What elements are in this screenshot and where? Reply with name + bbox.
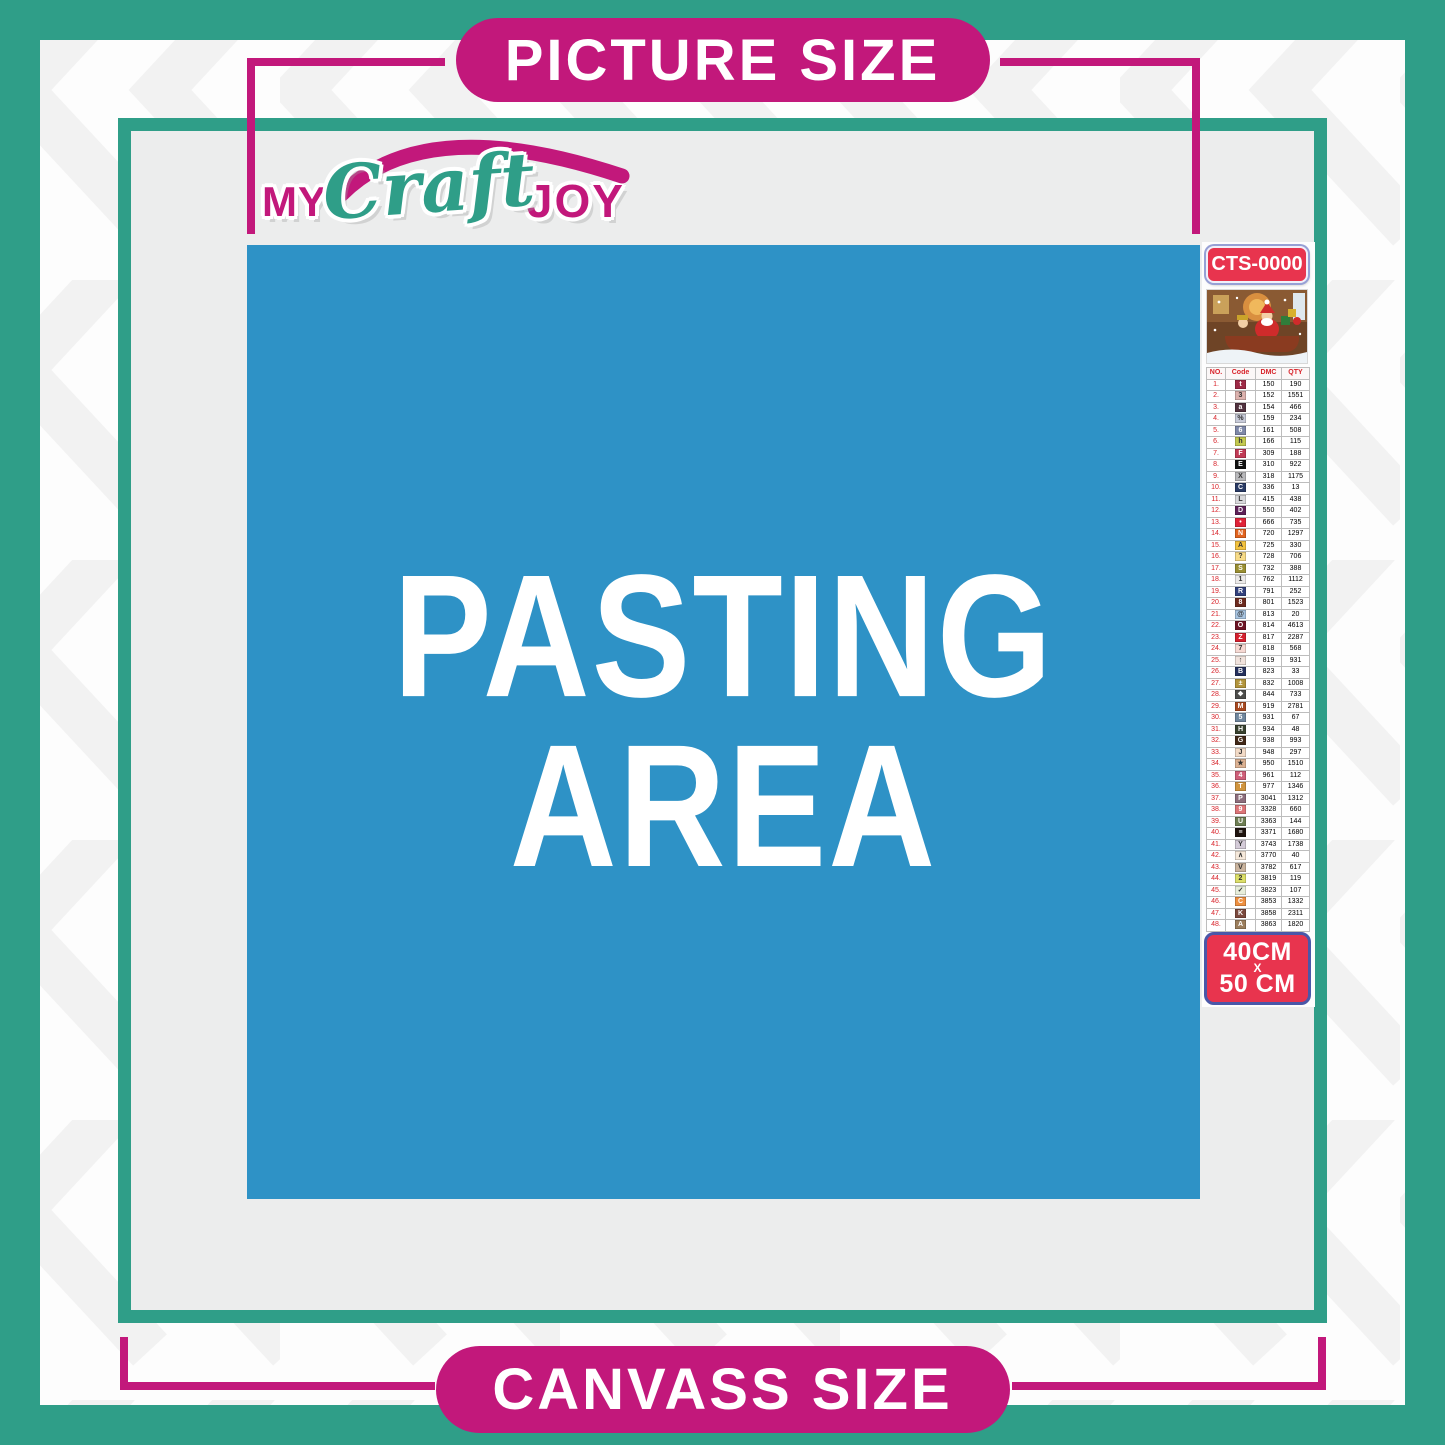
color-chip: 5: [1235, 713, 1246, 722]
color-chip: C: [1235, 897, 1246, 906]
color-legend-table: NO. Code DMC QTY 1.t1501902.315215513.a1…: [1206, 367, 1310, 932]
legend-row-code: Z: [1226, 632, 1256, 644]
legend-row-dmc: 961: [1256, 770, 1282, 782]
legend-row-number: 42.: [1207, 851, 1226, 863]
size-height-text: 50 CM: [1219, 974, 1295, 995]
legend-row: 24.7818568: [1207, 644, 1310, 656]
legend-row: 36.T9771346: [1207, 782, 1310, 794]
legend-row: 41.Y37431738: [1207, 839, 1310, 851]
legend-row-dmc: 3328: [1256, 805, 1282, 817]
legend-row: 21.@81320: [1207, 609, 1310, 621]
legend-row-number: 32.: [1207, 736, 1226, 748]
mycraftjoy-logo: MY Craft JOY: [262, 140, 625, 232]
size-width-text: 40CM: [1223, 942, 1292, 963]
legend-row-code: @: [1226, 609, 1256, 621]
legend-row-qty: 1820: [1282, 920, 1310, 932]
legend-row-number: 20.: [1207, 598, 1226, 610]
legend-row-code: H: [1226, 724, 1256, 736]
legend-row-qty: 40: [1282, 851, 1310, 863]
legend-row-number: 24.: [1207, 644, 1226, 656]
color-chip: P: [1235, 794, 1246, 803]
legend-row-qty: 1510: [1282, 759, 1310, 771]
legend-row-dmc: 336: [1256, 483, 1282, 495]
color-chip: V: [1235, 863, 1246, 872]
legend-row-dmc: 3770: [1256, 851, 1282, 863]
color-chip: 8: [1235, 598, 1246, 607]
legend-row-qty: 931: [1282, 655, 1310, 667]
legend-row-qty: 2287: [1282, 632, 1310, 644]
legend-row-dmc: 310: [1256, 460, 1282, 472]
legend-header-code: Code: [1226, 368, 1256, 380]
legend-row: 38.93328660: [1207, 805, 1310, 817]
legend-row: 30.593167: [1207, 713, 1310, 725]
color-chip: h: [1235, 437, 1246, 446]
legend-row-code: 9: [1226, 805, 1256, 817]
legend-row-code: %: [1226, 414, 1256, 426]
legend-row-code: ∧: [1226, 851, 1256, 863]
legend-row-code: O: [1226, 621, 1256, 633]
color-chip: 2: [1235, 874, 1246, 883]
legend-row-dmc: 919: [1256, 701, 1282, 713]
legend-row-dmc: 977: [1256, 782, 1282, 794]
legend-row-code: M: [1226, 701, 1256, 713]
legend-row: 37.P30411312: [1207, 793, 1310, 805]
legend-row-number: 6.: [1207, 437, 1226, 449]
legend-row-code: C: [1226, 897, 1256, 909]
legend-row: 27.±8321008: [1207, 678, 1310, 690]
legend-row-code: ★: [1226, 759, 1256, 771]
legend-row-code: 1: [1226, 575, 1256, 587]
legend-row: 35.4961112: [1207, 770, 1310, 782]
color-chip: %: [1235, 414, 1246, 423]
legend-row-dmc: 166: [1256, 437, 1282, 449]
legend-row-qty: 13: [1282, 483, 1310, 495]
color-chip: K: [1235, 909, 1246, 918]
picture-bracket-left-stub: [247, 58, 255, 234]
legend-row-dmc: 3819: [1256, 874, 1282, 886]
legend-row-number: 31.: [1207, 724, 1226, 736]
legend-row-dmc: 931: [1256, 713, 1282, 725]
legend-row-dmc: 938: [1256, 736, 1282, 748]
legend-row: 32.G938993: [1207, 736, 1310, 748]
legend-row-number: 23.: [1207, 632, 1226, 644]
legend-row: 22.O8144613: [1207, 621, 1310, 633]
legend-row-number: 28.: [1207, 690, 1226, 702]
legend-row: 1.t150190: [1207, 379, 1310, 391]
canvass-bracket-left-stub: [120, 1337, 128, 1390]
legend-row-dmc: 154: [1256, 402, 1282, 414]
legend-row-qty: 1175: [1282, 471, 1310, 483]
product-code-badge: CTS-0000: [1206, 246, 1308, 283]
color-chip: D: [1235, 506, 1246, 515]
product-code-text: CTS-0000: [1211, 253, 1302, 276]
legend-row-code: E: [1226, 460, 1256, 472]
color-chip: J: [1235, 748, 1246, 757]
legend-row: 10.C33613: [1207, 483, 1310, 495]
legend-row-qty: 1738: [1282, 839, 1310, 851]
legend-row-number: 16.: [1207, 552, 1226, 564]
legend-row-code: K: [1226, 908, 1256, 920]
legend-row-number: 21.: [1207, 609, 1226, 621]
artwork-thumbnail: [1207, 290, 1307, 363]
legend-row-dmc: 415: [1256, 494, 1282, 506]
legend-row-code: •: [1226, 517, 1256, 529]
legend-row: 5.6161508: [1207, 425, 1310, 437]
legend-row-code: 5: [1226, 713, 1256, 725]
legend-row-code: T: [1226, 782, 1256, 794]
color-chip: t: [1235, 380, 1246, 389]
legend-row: 47.K38582311: [1207, 908, 1310, 920]
pasting-area-title: PASTING AREA: [393, 553, 1054, 892]
legend-row-number: 46.: [1207, 897, 1226, 909]
legend-row-dmc: 948: [1256, 747, 1282, 759]
legend-row: 15.A725330: [1207, 540, 1310, 552]
legend-row-dmc: 950: [1256, 759, 1282, 771]
legend-row-number: 40.: [1207, 828, 1226, 840]
legend-row-dmc: 819: [1256, 655, 1282, 667]
legend-header-dmc: DMC: [1256, 368, 1282, 380]
color-chip: ❖: [1235, 690, 1246, 699]
pasting-line-2: AREA: [393, 722, 1054, 891]
legend-row-number: 1.: [1207, 379, 1226, 391]
legend-row-qty: 1680: [1282, 828, 1310, 840]
color-chip: ±: [1235, 679, 1246, 688]
color-chip: O: [1235, 621, 1246, 630]
legend-row-dmc: 159: [1256, 414, 1282, 426]
color-chip: ≡: [1235, 828, 1246, 837]
legend-row-code: G: [1226, 736, 1256, 748]
legend-row-qty: 67: [1282, 713, 1310, 725]
legend-row-code: R: [1226, 586, 1256, 598]
legend-row-qty: 1312: [1282, 793, 1310, 805]
legend-row: 7.F309188: [1207, 448, 1310, 460]
legend-row-code: 6: [1226, 425, 1256, 437]
color-chip: 9: [1235, 805, 1246, 814]
legend-row-number: 10.: [1207, 483, 1226, 495]
color-chip: C: [1235, 483, 1246, 492]
legend-row-dmc: 3041: [1256, 793, 1282, 805]
legend-header-qty: QTY: [1282, 368, 1310, 380]
color-chip: B: [1235, 667, 1246, 676]
legend-row-code: X: [1226, 471, 1256, 483]
legend-row: 26.B82333: [1207, 667, 1310, 679]
legend-row: 19.R791252: [1207, 586, 1310, 598]
legend-row-number: 36.: [1207, 782, 1226, 794]
legend-row-number: 12.: [1207, 506, 1226, 518]
pasting-area: PASTING AREA: [247, 245, 1200, 1199]
color-chip: M: [1235, 702, 1246, 711]
legend-row: 14.N7201297: [1207, 529, 1310, 541]
canvass-size-text: CANVASS SIZE: [492, 1356, 952, 1423]
legend-row-code: h: [1226, 437, 1256, 449]
legend-row-dmc: 720: [1256, 529, 1282, 541]
legend-row-qty: 706: [1282, 552, 1310, 564]
legend-row-code: L: [1226, 494, 1256, 506]
color-chip: 7: [1235, 644, 1246, 653]
legend-row-code: A: [1226, 920, 1256, 932]
legend-row-qty: 466: [1282, 402, 1310, 414]
legend-row-qty: 660: [1282, 805, 1310, 817]
color-chip: T: [1235, 782, 1246, 791]
legend-row: 42.∧377040: [1207, 851, 1310, 863]
legend-row-dmc: 813: [1256, 609, 1282, 621]
legend-row-number: 37.: [1207, 793, 1226, 805]
color-chip: X: [1235, 472, 1246, 481]
color-chip: ★: [1235, 759, 1246, 768]
legend-row-number: 15.: [1207, 540, 1226, 552]
color-chip: G: [1235, 736, 1246, 745]
legend-row-qty: 1112: [1282, 575, 1310, 587]
color-chip: R: [1235, 587, 1246, 596]
color-chip: ?: [1235, 552, 1246, 561]
color-chip: 4: [1235, 771, 1246, 780]
canvass-size-label: CANVASS SIZE: [436, 1346, 1010, 1433]
legend-row-code: ?: [1226, 552, 1256, 564]
canvass-bracket-bottom-right-line: [1012, 1382, 1326, 1390]
legend-row-dmc: 3863: [1256, 920, 1282, 932]
legend-row-code: ≡: [1226, 828, 1256, 840]
legend-row-number: 4.: [1207, 414, 1226, 426]
legend-row-dmc: 3371: [1256, 828, 1282, 840]
legend-row-number: 27.: [1207, 678, 1226, 690]
legend-row-number: 29.: [1207, 701, 1226, 713]
legend-row-dmc: 725: [1256, 540, 1282, 552]
legend-row-qty: 993: [1282, 736, 1310, 748]
legend-row-qty: 402: [1282, 506, 1310, 518]
pasting-area-infographic: PICTURE SIZE CANVASS SIZE PASTING AREA M…: [0, 0, 1445, 1445]
legend-row-code: ±: [1226, 678, 1256, 690]
legend-row-code: ✓: [1226, 885, 1256, 897]
legend-row-code: ↑: [1226, 655, 1256, 667]
legend-row-number: 14.: [1207, 529, 1226, 541]
legend-row-number: 47.: [1207, 908, 1226, 920]
legend-row-dmc: 801: [1256, 598, 1282, 610]
legend-row-number: 30.: [1207, 713, 1226, 725]
legend-row-number: 7.: [1207, 448, 1226, 460]
legend-row-code: t: [1226, 379, 1256, 391]
legend-row: 6.h166115: [1207, 437, 1310, 449]
legend-row-qty: 252: [1282, 586, 1310, 598]
legend-row-qty: 1297: [1282, 529, 1310, 541]
legend-row-number: 34.: [1207, 759, 1226, 771]
legend-row-dmc: 152: [1256, 391, 1282, 403]
legend-row-code: P: [1226, 793, 1256, 805]
legend-row-qty: 2781: [1282, 701, 1310, 713]
color-chip: Y: [1235, 840, 1246, 849]
legend-row-dmc: 844: [1256, 690, 1282, 702]
legend-row-dmc: 934: [1256, 724, 1282, 736]
legend-row: 11.L415438: [1207, 494, 1310, 506]
legend-row-dmc: 814: [1256, 621, 1282, 633]
legend-row-dmc: 3363: [1256, 816, 1282, 828]
legend-row: 20.88011523: [1207, 598, 1310, 610]
legend-row-code: a: [1226, 402, 1256, 414]
legend-row-dmc: 817: [1256, 632, 1282, 644]
color-chip: 1: [1235, 575, 1246, 584]
pasting-line-1: PASTING: [393, 553, 1054, 722]
color-chip: E: [1235, 460, 1246, 469]
picture-size-label: PICTURE SIZE: [456, 18, 990, 102]
legend-row-qty: 1551: [1282, 391, 1310, 403]
canvass-bracket-bottom-left-line: [120, 1382, 435, 1390]
color-chip: a: [1235, 403, 1246, 412]
legend-row-number: 13.: [1207, 517, 1226, 529]
legend-row-code: V: [1226, 862, 1256, 874]
legend-row-qty: 438: [1282, 494, 1310, 506]
legend-row-qty: 188: [1282, 448, 1310, 460]
legend-row-qty: 508: [1282, 425, 1310, 437]
legend-row: 48.A38631820: [1207, 920, 1310, 932]
legend-row-dmc: 818: [1256, 644, 1282, 656]
legend-row: 33.J948297: [1207, 747, 1310, 759]
legend-row: 12.D550402: [1207, 506, 1310, 518]
legend-row-qty: 568: [1282, 644, 1310, 656]
color-chip: ↑: [1235, 656, 1246, 665]
color-chip: U: [1235, 817, 1246, 826]
legend-row-dmc: 3853: [1256, 897, 1282, 909]
legend-row-qty: 33: [1282, 667, 1310, 679]
legend-row-number: 22.: [1207, 621, 1226, 633]
legend-row-number: 3.: [1207, 402, 1226, 414]
legend-row-code: D: [1226, 506, 1256, 518]
legend-row-dmc: 3743: [1256, 839, 1282, 851]
legend-row-qty: 4613: [1282, 621, 1310, 633]
legend-row-dmc: 823: [1256, 667, 1282, 679]
color-chip: L: [1235, 495, 1246, 504]
legend-row-code: J: [1226, 747, 1256, 759]
legend-row: 39.U3363144: [1207, 816, 1310, 828]
legend-row-qty: 733: [1282, 690, 1310, 702]
legend-row-qty: 1346: [1282, 782, 1310, 794]
legend-row: 45.✓3823107: [1207, 885, 1310, 897]
legend-row-number: 48.: [1207, 920, 1226, 932]
legend-header-no: NO.: [1207, 368, 1226, 380]
legend-row-number: 44.: [1207, 874, 1226, 886]
logo-part-joy: JOY: [527, 174, 625, 228]
legend-row-dmc: 150: [1256, 379, 1282, 391]
color-chip: 6: [1235, 426, 1246, 435]
legend-row-qty: 190: [1282, 379, 1310, 391]
legend-row-qty: 735: [1282, 517, 1310, 529]
legend-row-number: 26.: [1207, 667, 1226, 679]
picture-bracket-top-left-line: [247, 58, 445, 66]
legend-row-number: 2.: [1207, 391, 1226, 403]
canvass-bracket-right-stub: [1318, 1337, 1326, 1390]
legend-row-code: B: [1226, 667, 1256, 679]
legend-row: 34.★9501510: [1207, 759, 1310, 771]
color-chip: ✓: [1235, 886, 1246, 895]
legend-row-dmc: 732: [1256, 563, 1282, 575]
legend-row-code: U: [1226, 816, 1256, 828]
legend-row-dmc: 3782: [1256, 862, 1282, 874]
legend-row: 23.Z8172287: [1207, 632, 1310, 644]
legend-row-qty: 617: [1282, 862, 1310, 874]
legend-row: 31.H93448: [1207, 724, 1310, 736]
legend-row: 18.17621112: [1207, 575, 1310, 587]
legend-row-qty: 119: [1282, 874, 1310, 886]
legend-row: 2.31521551: [1207, 391, 1310, 403]
legend-row-code: 3: [1226, 391, 1256, 403]
color-chip: N: [1235, 529, 1246, 538]
legend-row-qty: 388: [1282, 563, 1310, 575]
legend-row-number: 43.: [1207, 862, 1226, 874]
legend-row-qty: 1008: [1282, 678, 1310, 690]
legend-row-qty: 922: [1282, 460, 1310, 472]
legend-row-dmc: 550: [1256, 506, 1282, 518]
color-chip: @: [1235, 610, 1246, 619]
color-chip: •: [1235, 518, 1246, 527]
logo-part-craft: Craft: [320, 137, 537, 238]
canvas-dimensions-badge: 40CM X 50 CM: [1204, 932, 1311, 1005]
legend-row-code: 7: [1226, 644, 1256, 656]
legend-row: 46.C38531332: [1207, 897, 1310, 909]
legend-row: 43.V3782617: [1207, 862, 1310, 874]
color-chip: F: [1235, 449, 1246, 458]
legend-row-number: 17.: [1207, 563, 1226, 575]
legend-row-number: 45.: [1207, 885, 1226, 897]
legend-row-qty: 330: [1282, 540, 1310, 552]
legend-row-number: 39.: [1207, 816, 1226, 828]
legend-row: 28.❖844733: [1207, 690, 1310, 702]
legend-row-number: 38.: [1207, 805, 1226, 817]
color-chip: S: [1235, 564, 1246, 573]
legend-row-number: 35.: [1207, 770, 1226, 782]
logo-part-my: MY: [262, 178, 327, 226]
legend-row-code: 8: [1226, 598, 1256, 610]
legend-row: 9.X3181175: [1207, 471, 1310, 483]
legend-row-dmc: 791: [1256, 586, 1282, 598]
legend-row-number: 8.: [1207, 460, 1226, 472]
legend-row-dmc: 666: [1256, 517, 1282, 529]
legend-row-code: 2: [1226, 874, 1256, 886]
legend-row-code: ❖: [1226, 690, 1256, 702]
legend-row-code: S: [1226, 563, 1256, 575]
legend-row-dmc: 728: [1256, 552, 1282, 564]
legend-row-dmc: 161: [1256, 425, 1282, 437]
picture-size-text: PICTURE SIZE: [505, 27, 941, 94]
legend-row: 29.M9192781: [1207, 701, 1310, 713]
color-chip: A: [1235, 541, 1246, 550]
color-chip: ∧: [1235, 851, 1246, 860]
legend-row-code: C: [1226, 483, 1256, 495]
legend-row-code: N: [1226, 529, 1256, 541]
legend-row-number: 5.: [1207, 425, 1226, 437]
legend-row-qty: 107: [1282, 885, 1310, 897]
picture-bracket-top-right-line: [1000, 58, 1200, 66]
color-chip: 3: [1235, 391, 1246, 400]
legend-row: 4.%159234: [1207, 414, 1310, 426]
legend-table-body: 1.t1501902.315215513.a1544664.%1592345.6…: [1207, 379, 1310, 931]
legend-row-qty: 1523: [1282, 598, 1310, 610]
legend-row-dmc: 3858: [1256, 908, 1282, 920]
color-chip: H: [1235, 725, 1246, 734]
legend-row-qty: 115: [1282, 437, 1310, 449]
legend-row-number: 19.: [1207, 586, 1226, 598]
legend-row-qty: 297: [1282, 747, 1310, 759]
legend-row-dmc: 832: [1256, 678, 1282, 690]
color-chip: A: [1235, 920, 1246, 929]
legend-row-dmc: 309: [1256, 448, 1282, 460]
legend-header-row: NO. Code DMC QTY: [1207, 368, 1310, 380]
legend-row-dmc: 762: [1256, 575, 1282, 587]
legend-row: 17.S732388: [1207, 563, 1310, 575]
legend-row: 13.•666735: [1207, 517, 1310, 529]
legend-row: 40.≡33711680: [1207, 828, 1310, 840]
legend-row-code: Y: [1226, 839, 1256, 851]
legend-row-number: 18.: [1207, 575, 1226, 587]
legend-row: 8.E310922: [1207, 460, 1310, 472]
color-chip: Z: [1235, 633, 1246, 642]
